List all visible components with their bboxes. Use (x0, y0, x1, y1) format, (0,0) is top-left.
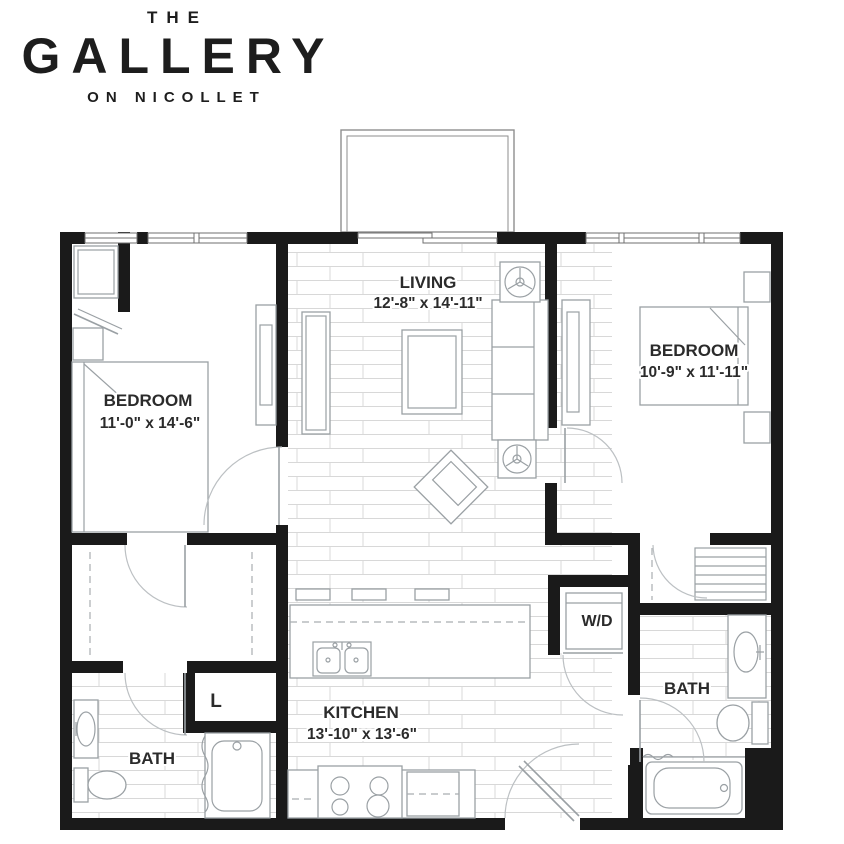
ceiling-fan-icon (500, 262, 540, 302)
walkin-closet (90, 545, 252, 655)
kitchen-island (290, 605, 530, 678)
kitchen-label: KITCHEN (323, 703, 399, 722)
dresser (256, 305, 276, 425)
refrigerator-icon (407, 772, 459, 816)
windows (85, 233, 740, 243)
vanity-sink-icon (728, 615, 766, 698)
floor-plan-page: THE GALLERY ON NICOLLET (0, 0, 844, 844)
wall-left (60, 232, 72, 830)
bath1-label: BATH (129, 749, 175, 768)
nightstand (73, 328, 103, 360)
living-label: LIVING (400, 273, 457, 292)
wall-right (771, 232, 783, 830)
bedroom1-dims: 11'-0" x 14'-6" (100, 415, 201, 432)
living-dims: 12'-8" x 14'-11" (373, 295, 482, 312)
balcony (341, 130, 514, 232)
dresser (562, 300, 590, 425)
vanity-sink-icon (74, 700, 98, 758)
sofa (492, 300, 548, 440)
tv-console (302, 312, 330, 434)
room-bedroom1: BEDROOM 11'-0" x 14'-6" (72, 246, 282, 532)
bedroom2-label: BEDROOM (650, 341, 739, 360)
pendant-light-icon (296, 589, 449, 600)
coffee-table (402, 330, 462, 414)
bed (72, 362, 208, 532)
bath2-label: BATH (664, 679, 710, 698)
bedroom1-label: BEDROOM (104, 391, 193, 410)
sliding-door-icon (358, 233, 497, 243)
bedroom2-dims: 10'-9" x 11'-11" (640, 364, 748, 381)
kitchen-dims: 13'-10" x 13'-6" (307, 726, 417, 743)
ceiling-fan-icon (498, 440, 536, 478)
laundry-label: W/D (581, 613, 612, 630)
stove-icon (318, 766, 402, 818)
bedroom2-closet (652, 545, 766, 600)
kitchen-counter (288, 766, 475, 818)
closet-shelf (74, 246, 118, 298)
linen-closet-floor (195, 673, 276, 721)
door-arc (204, 447, 282, 525)
nightstand (744, 272, 770, 302)
nightstand (744, 412, 770, 443)
bathtub-icon (202, 733, 270, 818)
toilet-icon (717, 702, 768, 744)
linen-label: L (210, 691, 222, 712)
door-arc (125, 545, 187, 607)
door-arc (653, 545, 707, 598)
toilet-icon (74, 768, 126, 802)
floor-plan-drawing: BEDROOM 11'-0" x 14'-6" (0, 0, 844, 844)
bathtub-icon (643, 755, 745, 819)
